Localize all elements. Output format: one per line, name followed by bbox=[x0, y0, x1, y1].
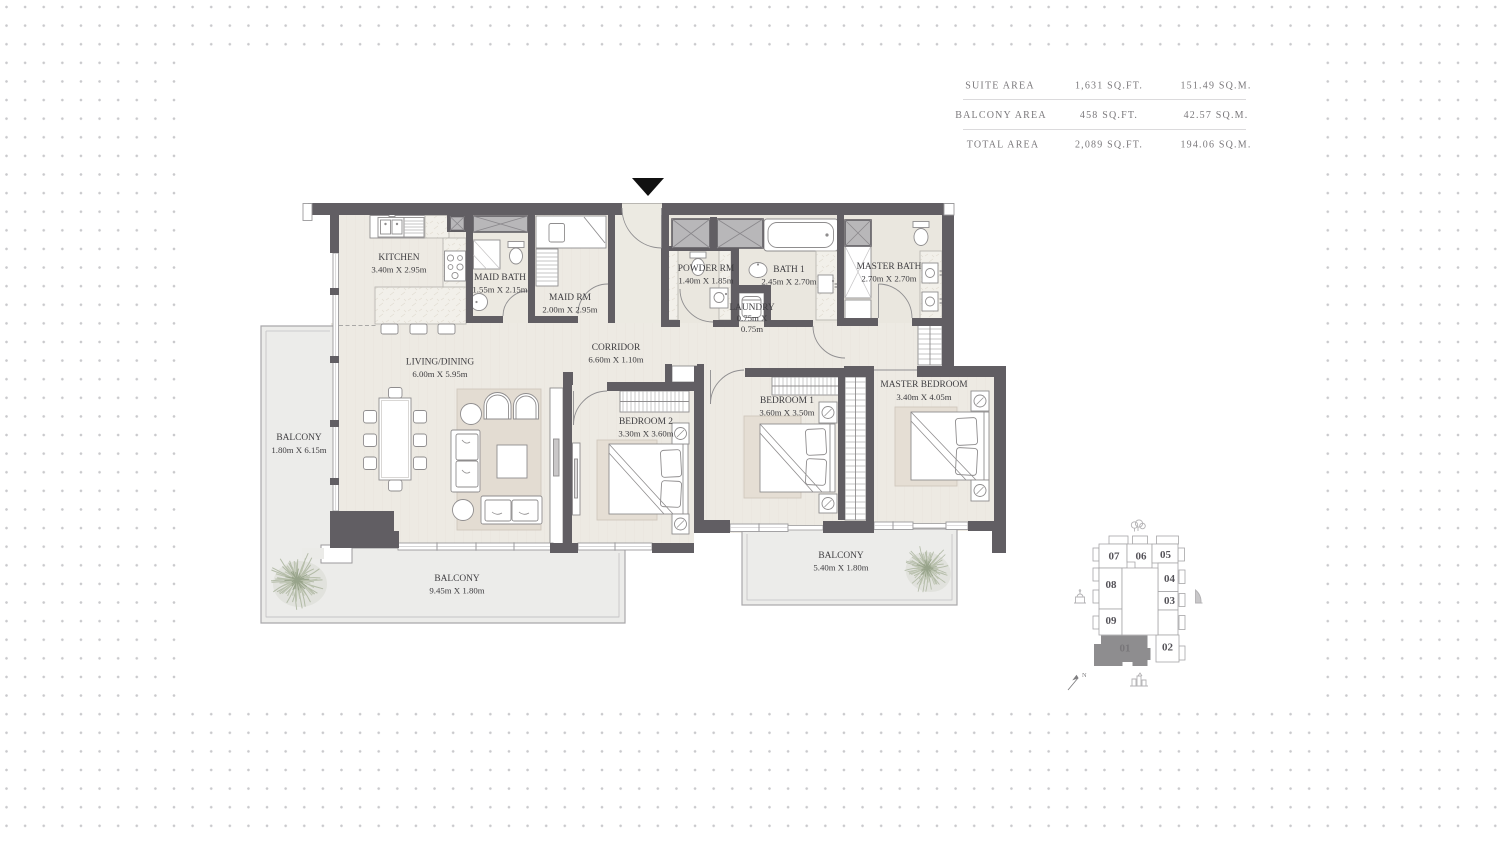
svg-text:1.55m X 2.15m: 1.55m X 2.15m bbox=[472, 285, 527, 295]
svg-text:1.40m X 1.85m: 1.40m X 1.85m bbox=[678, 276, 733, 286]
svg-text:03: 03 bbox=[1164, 595, 1176, 607]
svg-text:01: 01 bbox=[1120, 643, 1131, 655]
svg-text:BEDROOM 1: BEDROOM 1 bbox=[760, 396, 814, 406]
svg-text:09: 09 bbox=[1106, 615, 1118, 627]
svg-text:3.40m X 2.95m: 3.40m X 2.95m bbox=[371, 265, 426, 275]
svg-text:3.60m X 3.50m: 3.60m X 3.50m bbox=[759, 408, 814, 418]
svg-text:151.49 SQ.M.: 151.49 SQ.M. bbox=[1180, 81, 1251, 92]
svg-text:0.75m X: 0.75m X bbox=[737, 313, 768, 323]
svg-text:BATH 1: BATH 1 bbox=[773, 265, 805, 275]
svg-text:TOTAL AREA: TOTAL AREA bbox=[967, 140, 1040, 151]
svg-text:2.45m X 2.70m: 2.45m X 2.70m bbox=[761, 277, 816, 287]
svg-text:POWDER RM: POWDER RM bbox=[678, 264, 735, 274]
svg-text:02: 02 bbox=[1162, 642, 1174, 654]
svg-text:CORRIDOR: CORRIDOR bbox=[592, 343, 641, 353]
svg-text:05: 05 bbox=[1160, 549, 1172, 561]
svg-text:3.40m X 4.05m: 3.40m X 4.05m bbox=[896, 392, 951, 402]
svg-text:BALCONY AREA: BALCONY AREA bbox=[955, 110, 1047, 121]
svg-text:08: 08 bbox=[1106, 579, 1118, 591]
svg-text:04: 04 bbox=[1164, 573, 1176, 585]
svg-text:MASTER BATH: MASTER BATH bbox=[857, 262, 922, 272]
svg-text:2.70m X 2.70m: 2.70m X 2.70m bbox=[861, 274, 916, 284]
svg-text:2.00m X 2.95m: 2.00m X 2.95m bbox=[542, 305, 597, 315]
svg-text:6.00m X 5.95m: 6.00m X 5.95m bbox=[412, 369, 467, 379]
svg-text:458 SQ.FT.: 458 SQ.FT. bbox=[1080, 110, 1138, 121]
svg-text:2,089 SQ.FT.: 2,089 SQ.FT. bbox=[1075, 140, 1143, 151]
svg-text:9.45m X 1.80m: 9.45m X 1.80m bbox=[429, 586, 484, 596]
svg-text:07: 07 bbox=[1109, 551, 1121, 563]
svg-text:BALCONY: BALCONY bbox=[276, 433, 322, 443]
svg-text:194.06 SQ.M.: 194.06 SQ.M. bbox=[1180, 140, 1251, 151]
svg-text:5.40m X 1.80m: 5.40m X 1.80m bbox=[813, 563, 868, 573]
svg-text:BALCONY: BALCONY bbox=[434, 574, 480, 584]
svg-text:KITCHEN: KITCHEN bbox=[378, 253, 419, 263]
svg-text:3.30m X 3.60m: 3.30m X 3.60m bbox=[618, 429, 673, 439]
svg-text:SUITE AREA: SUITE AREA bbox=[965, 81, 1035, 92]
svg-text:LAUNDRY: LAUNDRY bbox=[729, 303, 775, 313]
svg-text:N: N bbox=[1082, 672, 1087, 679]
svg-text:42.57 SQ.M.: 42.57 SQ.M. bbox=[1184, 110, 1249, 121]
svg-text:LIVING/DINING: LIVING/DINING bbox=[406, 358, 474, 368]
svg-text:BALCONY: BALCONY bbox=[818, 551, 864, 561]
svg-text:1.80m X 6.15m: 1.80m X 6.15m bbox=[271, 445, 326, 455]
svg-text:06: 06 bbox=[1136, 551, 1148, 563]
svg-text:MAID RM: MAID RM bbox=[549, 293, 592, 303]
svg-text:BEDROOM 2: BEDROOM 2 bbox=[619, 417, 673, 427]
svg-text:MASTER BEDROOM: MASTER BEDROOM bbox=[880, 380, 968, 390]
svg-text:0.75m: 0.75m bbox=[741, 324, 763, 334]
svg-text:1,631 SQ.FT.: 1,631 SQ.FT. bbox=[1075, 81, 1143, 92]
svg-text:6.60m X 1.10m: 6.60m X 1.10m bbox=[588, 355, 643, 365]
svg-text:MAID BATH: MAID BATH bbox=[474, 273, 526, 283]
